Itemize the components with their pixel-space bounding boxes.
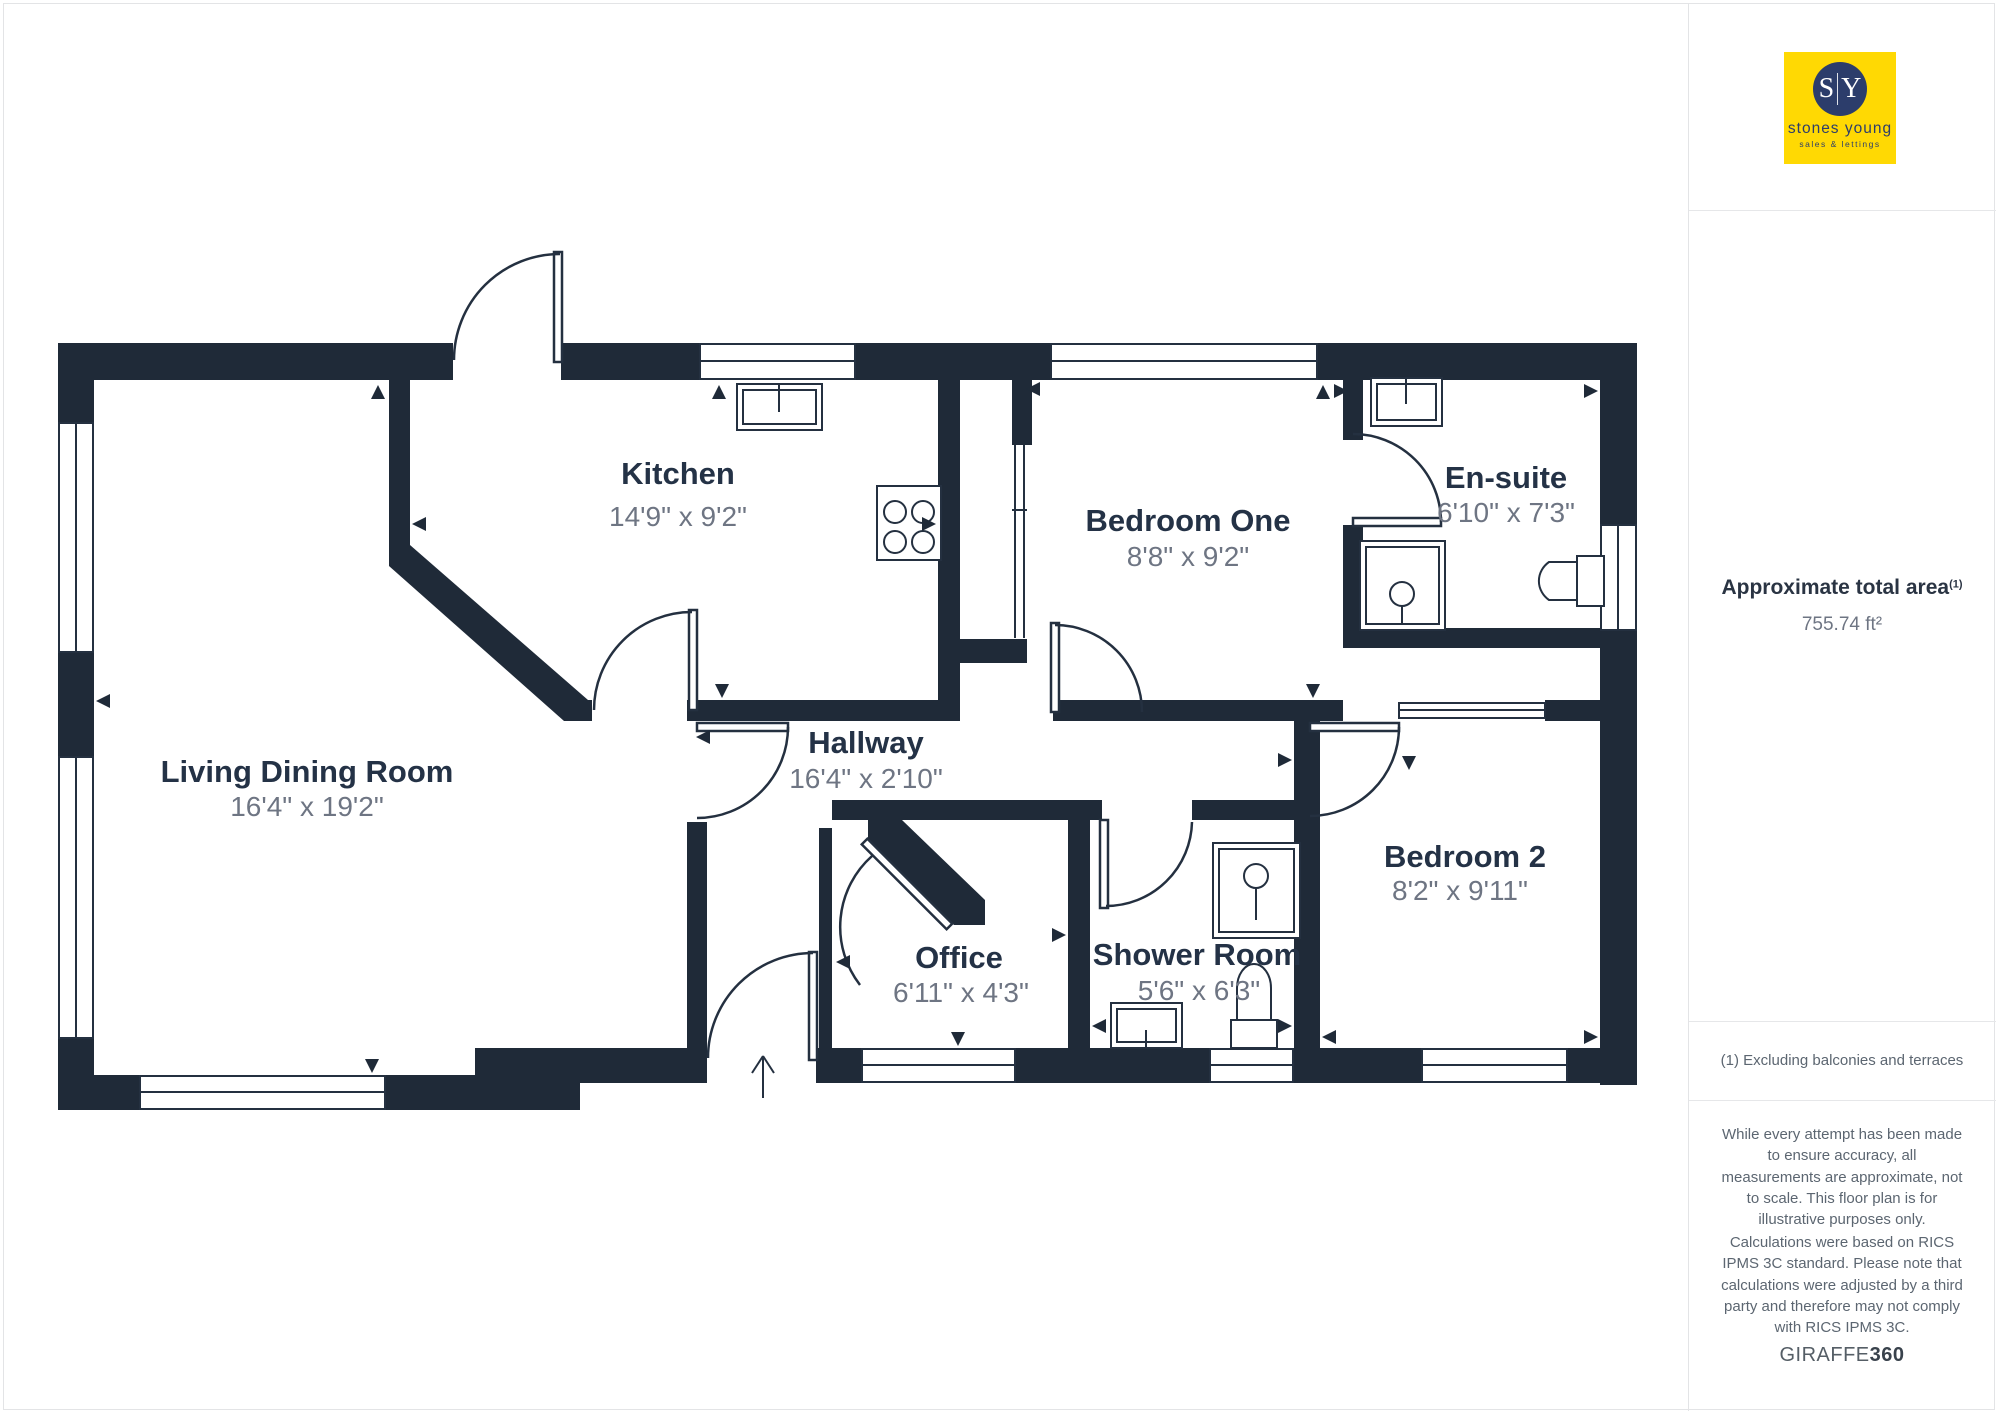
entrance-arrow: [752, 1056, 774, 1098]
logo-tagline: sales & lettings: [1784, 139, 1896, 149]
shower-room-shower: [1213, 843, 1300, 938]
door-bedroom2: [1310, 723, 1399, 816]
room-label-hallway: Hallway: [808, 725, 924, 760]
room-label-shower: Shower Room: [1093, 937, 1301, 972]
room-dims-bedroom2: 8'2" x 9'11": [1392, 875, 1528, 906]
total-area-footnote-ref: (1): [1949, 579, 1962, 591]
kitchen-sink: [737, 384, 822, 430]
room-dims-bedroom1: 8'8" x 9'2": [1127, 541, 1249, 572]
glass-panel-bedroom-one: [1012, 445, 1027, 638]
door-exterior-kitchen: [454, 252, 562, 362]
window-right-ensuite: [1601, 525, 1636, 630]
logo-divider-bar: [1837, 73, 1838, 105]
window-left-lower: [59, 757, 93, 1038]
ensuite-basin: [1371, 378, 1442, 426]
window-top-bedroom-one: [1051, 344, 1317, 379]
logo-letter-s: S: [1819, 75, 1835, 103]
disclaimer-rics: Calculations were based on RICS IPMS 3C …: [1716, 1232, 1968, 1338]
disclaimer-accuracy: While every attempt has been made to ens…: [1716, 1124, 1968, 1230]
window-strip-bedroom2: [1399, 703, 1545, 718]
sidebar-divider-low: [1689, 1100, 1996, 1101]
total-area-block: Approximate total area(1) 755.74 ft²: [1688, 576, 1996, 636]
floorplan: Living Dining Room 16'4" x 19'2" Kitchen…: [0, 0, 1688, 1415]
giraffe360-logo: GIRAFFE360: [1688, 1344, 1996, 1367]
window-top-kitchen: [700, 344, 855, 379]
room-label-living: Living Dining Room: [161, 754, 454, 789]
room-label-ensuite: En-suite: [1445, 460, 1567, 495]
room-label-bedroom1: Bedroom One: [1086, 503, 1291, 538]
ensuite-shower: [1360, 541, 1445, 630]
room-dims-hallway: 16'4" x 2'10": [789, 763, 943, 794]
giraffe360-text: GIRAFFE: [1779, 1344, 1869, 1366]
window-bottom-bedroom2: [1422, 1049, 1567, 1082]
sidebar-divider-mid: [1689, 1021, 1996, 1022]
room-label-office: Office: [915, 940, 1003, 975]
room-dims-kitchen: 14'9" x 9'2": [609, 501, 747, 532]
door-bedroom-one: [1051, 623, 1142, 712]
room-dims-ensuite: 6'10" x 7'3": [1437, 497, 1575, 528]
stones-young-logo: S Y stones young sales & lettings: [1784, 52, 1896, 164]
shower-room-basin: [1111, 1003, 1182, 1048]
door-shower-room: [1100, 820, 1192, 908]
total-area-label: Approximate total area: [1721, 576, 1949, 599]
sidebar-divider: [1688, 4, 1689, 1411]
footnote-text: (1) Excluding balconies and terraces: [1688, 1052, 1996, 1069]
room-label-bedroom2: Bedroom 2: [1384, 839, 1546, 874]
room-dims-shower: 5'6" x 6'3": [1138, 975, 1260, 1006]
sidebar-divider-top: [1689, 210, 1996, 211]
door-entrance: [708, 952, 817, 1060]
total-area-value: 755.74 ft²: [1688, 614, 1996, 636]
window-bottom-shower: [1210, 1049, 1293, 1082]
room-dims-office: 6'11" x 4'3": [893, 977, 1029, 1008]
window-left-upper: [59, 423, 93, 652]
door-living-vestibule: [697, 723, 788, 818]
room-dims-living: 16'4" x 19'2": [230, 791, 384, 822]
ensuite-toilet: [1539, 556, 1604, 606]
giraffe360-bold: 360: [1870, 1344, 1905, 1366]
logo-name: stones young: [1784, 120, 1896, 138]
sy-logo-icon: S Y: [1813, 62, 1867, 116]
logo-letter-y: Y: [1841, 75, 1861, 103]
window-bottom-office: [862, 1049, 1015, 1082]
window-bottom-living: [140, 1076, 385, 1109]
room-label-kitchen: Kitchen: [621, 456, 735, 491]
door-ensuite: [1353, 434, 1441, 526]
door-kitchen-living: [594, 610, 697, 710]
